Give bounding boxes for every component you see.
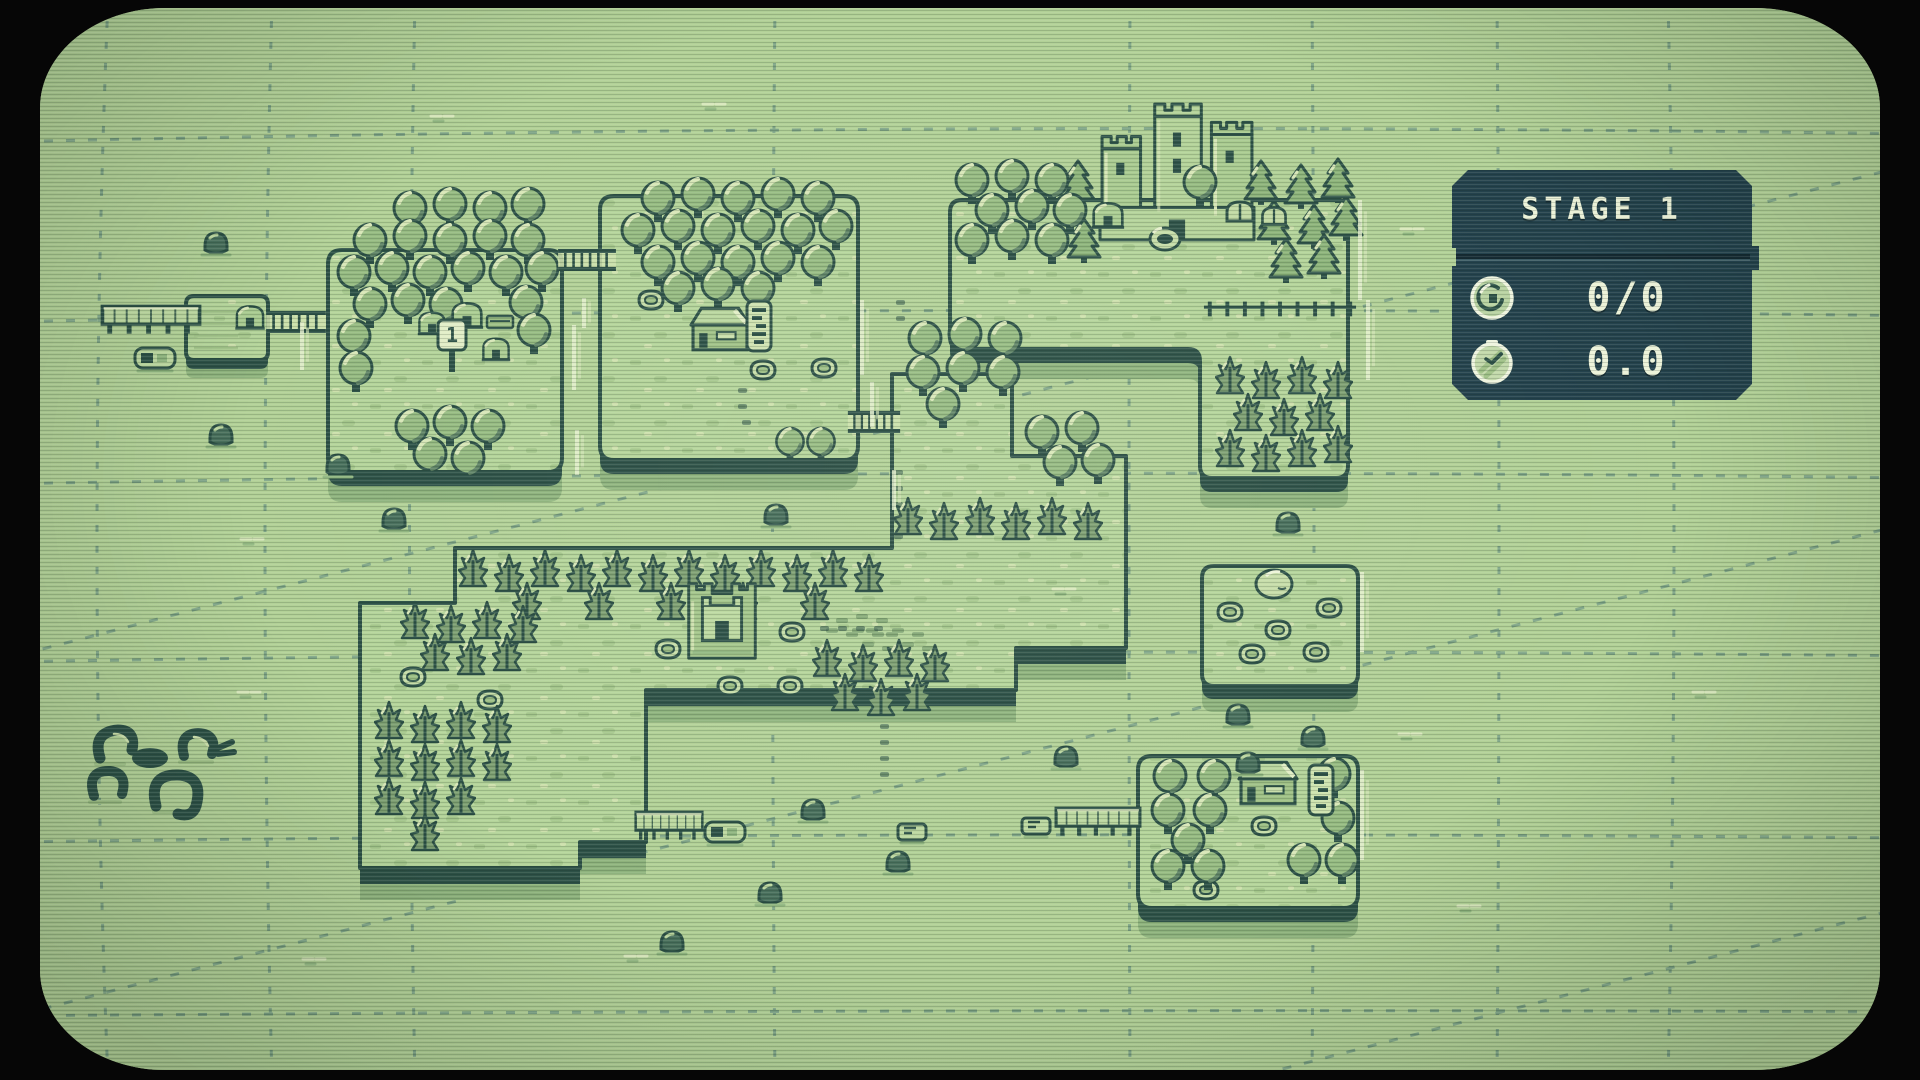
notice-sign — [747, 301, 771, 351]
village-well — [1150, 228, 1180, 250]
path-dot — [880, 772, 889, 777]
timer-row: 0.0 — [1468, 334, 1738, 390]
dock-hut — [235, 306, 264, 328]
path-dot — [838, 626, 847, 631]
water-rock-icon — [1234, 753, 1262, 775]
path-dot — [856, 626, 865, 631]
crt-monitor: 1 — [0, 0, 1920, 1080]
boat — [705, 822, 745, 845]
rock-icon — [812, 359, 836, 377]
tent-icon — [1227, 202, 1253, 221]
house — [691, 308, 749, 349]
rock-icon — [778, 677, 802, 695]
water-rock-icon — [202, 233, 230, 255]
rock-icon — [718, 677, 742, 695]
boat — [135, 348, 175, 371]
water-rock-icon — [658, 932, 686, 954]
coin-medal-icon — [1468, 274, 1516, 322]
stable-hut — [1092, 203, 1124, 227]
rock-icon — [780, 623, 804, 641]
path-dot — [880, 724, 889, 729]
raft — [898, 824, 926, 843]
timer-value: 0.0 — [1516, 339, 1738, 385]
path-dot — [820, 626, 829, 631]
notice-sign — [1309, 765, 1333, 815]
path-dot — [896, 316, 905, 321]
path-dot — [874, 626, 883, 631]
rock-mound — [1256, 570, 1292, 598]
water-rock-icon — [756, 883, 784, 905]
rock-icon — [656, 640, 680, 658]
bench — [487, 316, 513, 328]
path-dot — [896, 300, 905, 305]
water-rock-icon — [207, 425, 235, 447]
path-dot — [880, 740, 889, 745]
water-rock-icon — [1299, 727, 1327, 749]
path-dot — [738, 404, 747, 409]
fort-ruin — [689, 584, 756, 658]
coin-counter-value: 0/0 — [1516, 275, 1738, 321]
coin-counter-row: 0/0 — [1468, 270, 1738, 326]
rock-icon — [1304, 643, 1328, 661]
tent-icon — [1262, 208, 1285, 225]
water-rock-icon — [380, 509, 408, 531]
raft — [1022, 818, 1050, 837]
stage-title: STAGE 1 — [1452, 192, 1752, 227]
game-screen[interactable]: 1 — [40, 8, 1880, 1070]
rock-icon — [639, 291, 663, 309]
water-rock-icon — [324, 455, 352, 477]
hud-side-notch — [1450, 248, 1456, 266]
world-map: 1 — [40, 8, 1880, 1070]
rock-icon — [1252, 817, 1276, 835]
water-rock-icon — [884, 852, 912, 874]
rock-icon — [1266, 621, 1290, 639]
hud-side-tab — [1750, 246, 1759, 270]
fence — [1204, 302, 1356, 317]
water-rock-icon — [799, 800, 827, 822]
water-rock-icon — [1224, 705, 1252, 727]
bridge — [266, 312, 326, 332]
stage-hud-panel: STAGE 1 0/0 — [1452, 170, 1752, 400]
signpost-label: 1 — [446, 323, 458, 347]
hud-divider-highlight — [1452, 259, 1752, 261]
rock-icon — [1317, 599, 1341, 617]
water-rock-icon — [762, 505, 790, 527]
water-rock-icon — [1052, 747, 1080, 769]
stopwatch-icon — [1468, 338, 1516, 386]
path-dot — [880, 756, 889, 761]
path-dot — [742, 420, 751, 425]
bridge — [558, 250, 616, 270]
path-dot — [738, 388, 747, 393]
rock-icon — [1218, 603, 1242, 621]
water-rock-icon — [1274, 513, 1302, 535]
rock-icon — [751, 361, 775, 379]
hut — [482, 339, 510, 360]
rock-icon — [1240, 645, 1264, 663]
world-map-content: 1 — [40, 8, 1880, 1070]
